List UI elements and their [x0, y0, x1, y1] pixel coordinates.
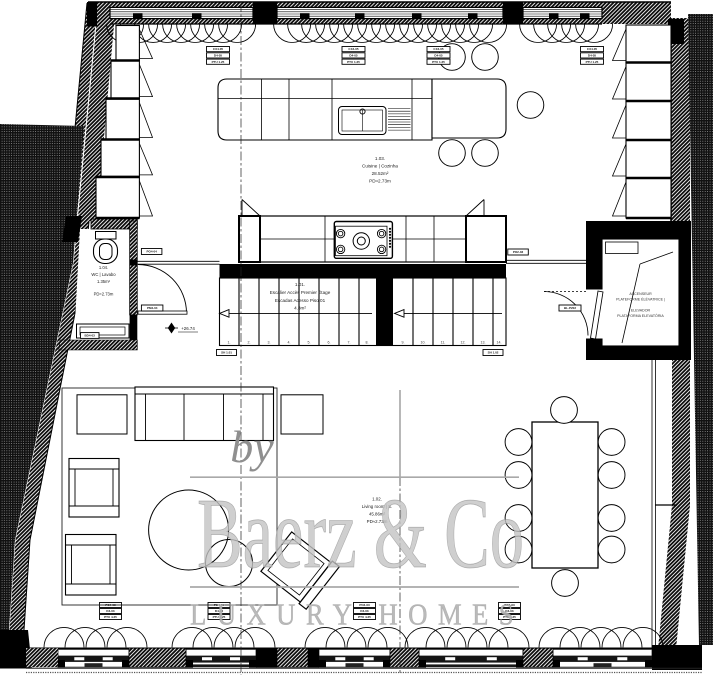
svg-text:3.: 3. — [268, 341, 271, 345]
svg-text:7.: 7. — [348, 341, 351, 345]
svg-text:5.: 5. — [308, 341, 311, 345]
svg-text:PO2-03: PO2-03 — [513, 250, 524, 254]
svg-text:D4-05: D4-05 — [588, 53, 597, 57]
svg-text:1.04.: 1.04. — [99, 265, 108, 270]
svg-text:BD4-03: BD4-03 — [85, 334, 96, 338]
svg-text:CX4-05: CX4-05 — [213, 47, 224, 51]
svg-text:WC | Lavabo: WC | Lavabo — [91, 272, 116, 277]
svg-text:SH 1.01: SH 1.01 — [221, 351, 232, 355]
svg-text:SH 1.02: SH 1.02 — [488, 351, 499, 355]
svg-text:9.: 9. — [402, 341, 405, 345]
svg-text:PTU 4.25: PTU 4.25 — [104, 615, 117, 619]
svg-text:LUXURY HOMES: LUXURY HOMES — [190, 597, 524, 632]
svg-text:10.: 10. — [421, 341, 426, 345]
svg-text:1.35m²: 1.35m² — [97, 279, 111, 284]
svg-text:D4-05: D4-05 — [434, 53, 443, 57]
svg-text:+26.74: +26.74 — [181, 326, 195, 331]
svg-text:Escadas Acesso Piso 01: Escadas Acesso Piso 01 — [275, 298, 326, 303]
svg-text:1.01.: 1.01. — [295, 282, 305, 287]
svg-text:PTU 1.25: PTU 1.25 — [347, 60, 360, 64]
svg-text:CX4-05: CX4-05 — [348, 47, 359, 51]
svg-text:4.: 4. — [288, 341, 291, 345]
svg-text:2.: 2. — [248, 341, 251, 345]
svg-text:11.: 11. — [441, 341, 446, 345]
svg-text:PTU 1.25: PTU 1.25 — [212, 60, 225, 64]
svg-text:PLATEFORME ÉLÉVATRICE |: PLATEFORME ÉLÉVATRICE | — [616, 297, 665, 302]
svg-text:ELEVADOR: ELEVADOR — [631, 309, 651, 313]
svg-text:PD≈2.73m: PD≈2.73m — [369, 179, 391, 184]
svg-text:6.: 6. — [328, 341, 331, 345]
svg-text:CX4-05: CX4-05 — [587, 47, 598, 51]
svg-text:Cuisine | Cozinha: Cuisine | Cozinha — [362, 164, 398, 169]
svg-text:13.: 13. — [481, 341, 486, 345]
svg-text:by: by — [230, 421, 274, 472]
svg-text:PM4-04: PM4-04 — [147, 306, 158, 310]
svg-text:BL-P202: BL-P202 — [564, 306, 576, 310]
svg-text:28.52m²: 28.52m² — [372, 171, 389, 176]
svg-text:Baerz & Co: Baerz & Co — [197, 477, 524, 589]
svg-text:D4-05: D4-05 — [214, 53, 223, 57]
svg-text:CX4-05: CX4-05 — [433, 47, 444, 51]
svg-text:PTU 1.25: PTU 1.25 — [586, 60, 599, 64]
svg-text:ASCENSEUR: ASCENSEUR — [629, 292, 652, 296]
svg-text:PO4-04: PO4-04 — [147, 250, 158, 254]
svg-text:Escalier Accès Premier Étage: Escalier Accès Premier Étage — [270, 289, 331, 295]
svg-text:1.: 1. — [228, 341, 231, 345]
svg-text:4.3m²: 4.3m² — [294, 306, 306, 311]
svg-text:PD≈2.73m: PD≈2.73m — [94, 292, 114, 297]
svg-text:14.: 14. — [497, 341, 502, 345]
svg-text:PTU 1.25: PTU 1.25 — [432, 60, 445, 64]
svg-text:8.: 8. — [366, 341, 369, 345]
svg-text:12.: 12. — [461, 341, 466, 345]
svg-text:D4-05: D4-05 — [349, 53, 358, 57]
svg-text:1.03.: 1.03. — [375, 156, 385, 161]
svg-text:PLATAFORMA ELEVATÓRIA: PLATAFORMA ELEVATÓRIA — [617, 313, 664, 318]
svg-text:D4-03: D4-03 — [106, 609, 115, 613]
